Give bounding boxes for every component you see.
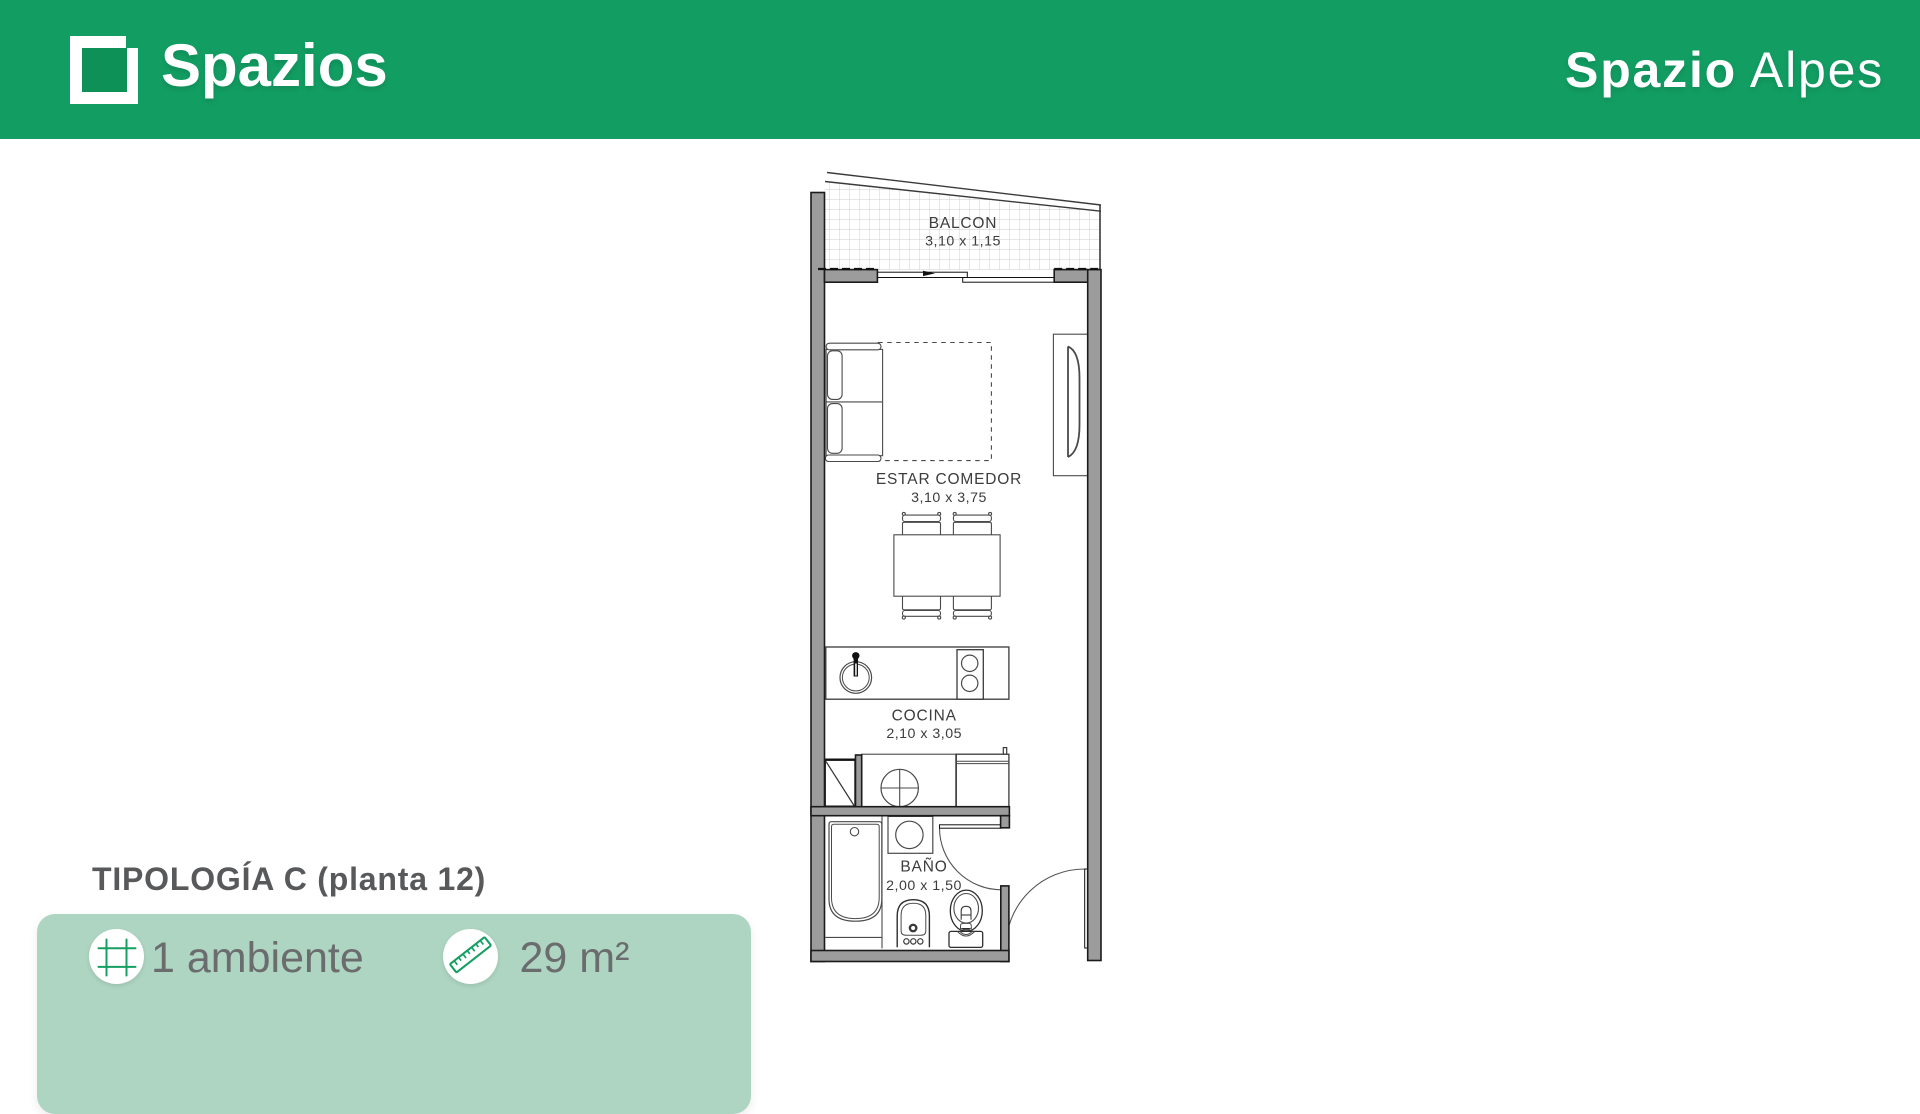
svg-text:COCINA: COCINA	[892, 708, 957, 725]
svg-text:ESTAR COMEDOR: ESTAR COMEDOR	[876, 471, 1022, 488]
svg-text:BAÑO: BAÑO	[900, 859, 947, 876]
svg-text:3,10 x 1,15: 3,10 x 1,15	[925, 234, 1001, 250]
svg-text:BALCON: BALCON	[929, 215, 998, 232]
svg-text:2,00 x 1,50: 2,00 x 1,50	[886, 878, 962, 894]
svg-text:3,10 x 3,75: 3,10 x 3,75	[911, 490, 987, 506]
svg-text:2,10 x 3,05: 2,10 x 3,05	[886, 726, 962, 742]
